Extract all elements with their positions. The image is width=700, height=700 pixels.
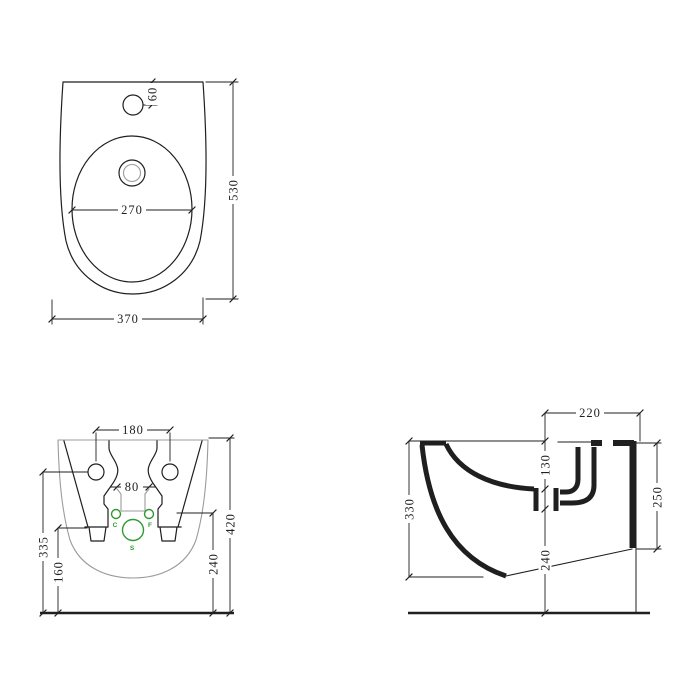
dim-160: 160 xyxy=(52,558,66,586)
soil-outlet-port xyxy=(123,520,144,541)
body-outline xyxy=(58,440,208,578)
connection-label-c: C xyxy=(113,522,118,529)
dim-ticks-rear-view xyxy=(40,427,233,616)
dim-130: 130 xyxy=(539,451,553,479)
drain-outer-ring xyxy=(119,160,145,186)
connection-label-s: S xyxy=(130,545,135,552)
dim-60: 60 xyxy=(146,83,160,105)
side-view: 220 130 240 250 330 xyxy=(403,406,665,616)
dim-label-530: 530 xyxy=(227,179,241,201)
dim-label-420: 420 xyxy=(224,513,238,535)
dim-label-270: 270 xyxy=(121,203,143,217)
dim-270: 270 xyxy=(118,203,146,217)
dim-420: 420 xyxy=(224,510,238,538)
dim-370: 370 xyxy=(114,312,142,326)
drawing-sheet: 60 270 530 370 C F S 180 xyxy=(0,0,700,700)
dim-335: 335 xyxy=(37,533,51,561)
dim-label-160: 160 xyxy=(52,561,66,583)
dim-ticks-top-view xyxy=(49,79,236,322)
section-thin-lines xyxy=(506,442,636,612)
cold-water-port xyxy=(112,510,121,519)
top-view: 60 270 530 370 xyxy=(49,79,241,326)
bidet-outline xyxy=(60,82,206,294)
hot-water-port xyxy=(145,510,154,519)
dim-250: 250 xyxy=(651,483,665,511)
dim-label-130: 130 xyxy=(539,454,553,476)
dim-label-330: 330 xyxy=(403,498,417,520)
dim-240-rear: 240 xyxy=(207,550,221,578)
dim-label-240-rear: 240 xyxy=(207,553,221,575)
faucet-hole xyxy=(123,95,143,115)
dim-530: 530 xyxy=(227,176,241,204)
dim-label-370: 370 xyxy=(117,312,139,326)
dim-label-180: 180 xyxy=(122,423,144,437)
fixing-hole-right xyxy=(162,464,178,480)
bidet-technical-drawing: 60 270 530 370 C F S 180 xyxy=(0,0,700,700)
dim-label-220: 220 xyxy=(579,406,601,420)
dim-220: 220 xyxy=(576,406,604,420)
fixing-hole-left xyxy=(88,464,104,480)
drain-inner-ring xyxy=(124,165,141,182)
connection-label-f: F xyxy=(148,522,152,529)
section-profile xyxy=(420,443,594,576)
dim-lines-top-view xyxy=(52,82,238,324)
dim-label-80: 80 xyxy=(125,480,140,494)
dim-330: 330 xyxy=(403,495,417,523)
dim-label-250: 250 xyxy=(651,486,665,508)
dim-label-335: 335 xyxy=(37,536,51,558)
dim-80: 80 xyxy=(121,480,143,494)
dim-240-side: 240 xyxy=(539,546,553,574)
dim-label-240-side: 240 xyxy=(539,549,553,571)
dim-180: 180 xyxy=(119,423,147,437)
rear-view: C F S 180 80 335 160 420 240 xyxy=(37,423,238,616)
dim-label-60: 60 xyxy=(146,87,160,102)
